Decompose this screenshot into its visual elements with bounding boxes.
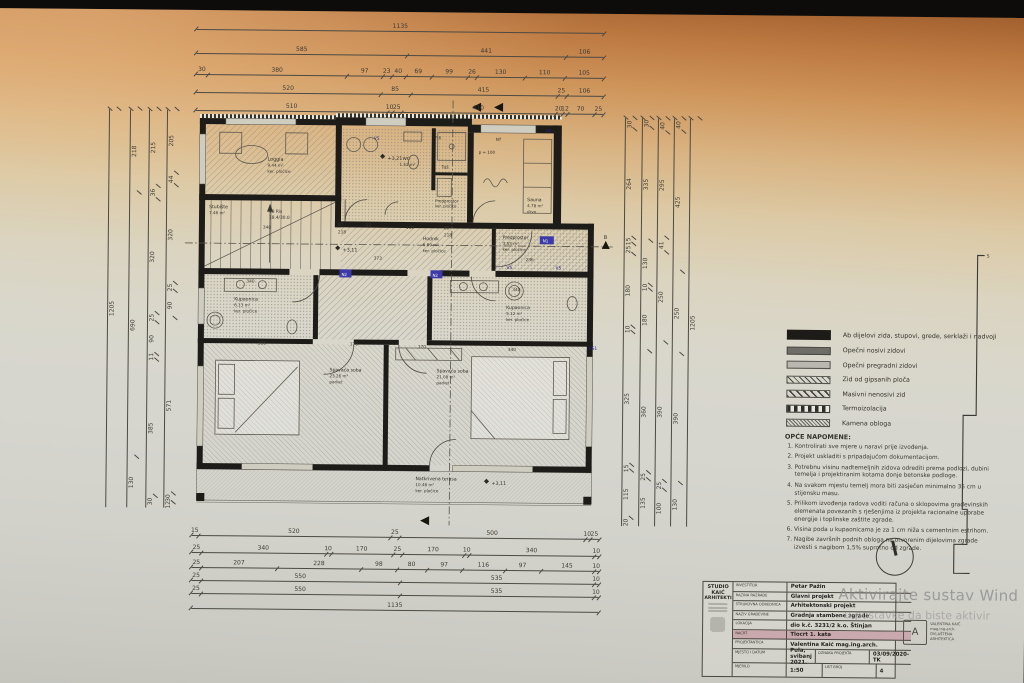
- elevation-311a: +3,11: [343, 247, 358, 253]
- titleblock-row-label: NACRT: [733, 630, 787, 639]
- dimension-value: 170: [331, 544, 393, 554]
- inner-dim: 80: [444, 225, 450, 231]
- legend-swatch: [786, 404, 830, 412]
- legend-label: Termoizolacija: [842, 405, 887, 412]
- titleblock-row-label: LOKACIJA: [733, 620, 787, 629]
- dim-chain-right-4: 40425250390130: [670, 119, 684, 527]
- dimension-value: 1135: [197, 20, 604, 33]
- sheet-number-value: 4: [877, 665, 912, 678]
- dimension-value: 25: [392, 103, 401, 112]
- dimension-value: 97: [505, 561, 541, 570]
- legend-swatch: [787, 361, 831, 369]
- dimension-value: 228: [277, 559, 361, 569]
- dimension-value: 207: [201, 558, 277, 568]
- dimension-value: 97: [426, 560, 462, 569]
- dim-chain-left-3: 2153632025901138530: [145, 110, 159, 508]
- monitor-photo: B +3,21 +3,11 +3,11 Loggia 9.44 m² ker. …: [0, 0, 1024, 683]
- dim-chain-bottom-3: 252072289880971169714510: [192, 558, 599, 572]
- dimension-value: 320: [166, 186, 176, 284]
- dimension-value: 510: [196, 101, 387, 112]
- north-needle: [891, 541, 897, 556]
- mark-n1: N1: [543, 238, 549, 243]
- sheet-number-label: LIST BROJ: [823, 664, 877, 678]
- dimension-value: 325: [623, 333, 633, 466]
- stamp-text: VALENTINA KAIĆ mag.ing.arch. OVLAŠTENA A…: [930, 620, 961, 645]
- dimension-value: 70: [567, 105, 593, 114]
- dimension-value: 535: [400, 586, 594, 597]
- studio-name-line2: ARHITEKTI: [704, 596, 731, 601]
- room-spavaca-r-floor: parket: [436, 380, 450, 385]
- dimension-value: 250: [657, 253, 667, 342]
- dimension-value: 30: [146, 497, 155, 508]
- dim-chain-top-3: 30380972340699926130110105: [196, 65, 603, 79]
- room-loggia-area: 9.44 m²: [267, 163, 283, 168]
- room-terasa-area: 10.48 m²: [415, 482, 434, 487]
- dim-chain-bottom-5: 2555053510: [191, 584, 598, 598]
- legend-swatch: [786, 375, 830, 383]
- room-kupaonica-l-area: 6.13 m²: [234, 302, 250, 307]
- stamp-line: ARHITEKTICA: [930, 637, 960, 642]
- dimension-value: 130: [641, 241, 650, 285]
- dim-chain-left-1: 1205: [105, 109, 119, 507]
- dimension-value: 135: [639, 481, 648, 527]
- dimension-value: 690: [128, 193, 140, 458]
- mark-n2a: N2: [341, 272, 347, 277]
- dimension-value: 550: [200, 584, 399, 595]
- room-sauna-floor: drvo: [527, 209, 537, 214]
- inner-dim: 340: [263, 225, 272, 231]
- mark-v5: V5: [374, 136, 380, 142]
- studio-logo: [710, 617, 725, 632]
- place-date-cell: MJESTO I DATUM Pula, svibanj 2021.: [733, 649, 816, 663]
- dim-chain-left-2: 218690130: [126, 109, 140, 507]
- dimension-value: 12: [164, 503, 173, 508]
- dim-chain-top-4: 5208541525106: [196, 83, 603, 97]
- mark-p100: p = 100: [479, 150, 496, 155]
- room-predprostor2-area: 3.53 m²: [503, 241, 519, 246]
- room-predprostor1-floor: ker. pločice: [435, 203, 457, 208]
- inner-dim: 218: [338, 229, 347, 235]
- dimension-value: 500: [399, 528, 584, 539]
- mark-nt: NT: [496, 137, 502, 142]
- dimension-value: 295: [658, 133, 668, 239]
- dimension-value: 390: [655, 342, 665, 482]
- inner-dim: 340: [508, 347, 517, 353]
- elevation-311b: +3,11: [491, 481, 506, 487]
- room-stubiste-area: 7.48 m²: [209, 210, 225, 215]
- dimension-value: 340: [201, 543, 326, 553]
- dim-chain-top-2: 585441106: [197, 44, 604, 58]
- dimension-value: 130: [671, 484, 680, 527]
- room-kupaonica-r-floor: ker. pločice: [506, 317, 530, 322]
- dimension-value: 130: [477, 68, 525, 77]
- inner-dim: 340: [512, 287, 521, 293]
- dimension-value: 180: [624, 254, 634, 327]
- studio-name-line1: STUDIO KAIĆ: [704, 584, 731, 596]
- project-code-label: OZNAKA PROJEKTA: [816, 650, 870, 664]
- dimension-value: 1135: [191, 599, 598, 612]
- notes-title: OPĆE NAPOMENE:: [785, 433, 851, 442]
- room-hodnik-floor: ker. pločice: [423, 248, 447, 253]
- dimension-value: 90: [166, 291, 175, 319]
- room-spavaca-l-area: 23.26 m²: [329, 373, 348, 378]
- studio-cell: STUDIO KAIĆ ARHITEKTI: [703, 582, 734, 676]
- dimension-value: 116: [462, 561, 505, 570]
- dimension-value: 23: [382, 67, 391, 76]
- mark-vs1: VS1: [589, 346, 598, 352]
- dimension-value: 80: [397, 560, 427, 569]
- dimension-value: 25: [192, 558, 201, 567]
- dimension-value: 215: [149, 110, 159, 187]
- dimension-value: 97: [347, 66, 383, 75]
- dimension-value: 100: [655, 491, 664, 527]
- titleblock-row-label: NAZIV GRAĐEVINE: [733, 611, 787, 620]
- project-code-cell: OZNAKA PROJEKTA 03/09/2020-TK: [816, 650, 912, 664]
- dim-chain-top-1: 1135: [197, 20, 604, 34]
- dimension-value: 170: [402, 545, 464, 555]
- mark-v5b: V5: [506, 265, 512, 271]
- dimension-value: 571: [164, 319, 175, 494]
- dimension-value: 145: [540, 561, 593, 571]
- inner-dim: 390: [258, 341, 267, 347]
- stamp-logo-a: A: [903, 620, 927, 645]
- dim-chain-bottom-2: 2534010170251701034010: [192, 543, 599, 557]
- stair-risers-1: 18 Ris: [269, 209, 283, 215]
- room-kupaonica-r-area: 5.12 m²: [506, 311, 522, 316]
- dimension-value: 26: [467, 68, 477, 77]
- legend-swatch: [787, 346, 831, 354]
- inner-dim: 83: [366, 223, 372, 229]
- dimension-value: 25: [590, 530, 599, 539]
- mark-v8: V8: [546, 128, 552, 134]
- dimension-value: 10: [593, 588, 598, 597]
- dimension-value: 25: [393, 545, 402, 554]
- dimension-value: 218: [130, 109, 140, 193]
- dimension-value: 25: [594, 105, 603, 114]
- dimension-value: 10: [594, 562, 599, 571]
- dimension-value: 10: [594, 547, 599, 556]
- windows-activation-watermark-line1: Aktivirajte sustav Wind: [838, 585, 1018, 605]
- north-arrow: [876, 538, 914, 576]
- legend-swatch: [786, 419, 830, 427]
- inner-dim: 340: [246, 278, 255, 284]
- stair-risers-2: 18.4/30.0: [269, 215, 290, 221]
- dimension-value: 25: [191, 584, 200, 593]
- titleblock-row-label: PROJEKTANTICA: [733, 640, 787, 649]
- dim-chain-right-3: 402954125039025100: [654, 118, 668, 526]
- dimension-value: 85: [380, 85, 410, 94]
- dim-chain-bottom-6: 1135: [191, 599, 598, 613]
- section-profile-line: S: [933, 242, 996, 583]
- sheet-number-cell: LIST BROJ 4: [823, 664, 912, 678]
- dimension-value: 25: [390, 528, 399, 537]
- windows-activation-watermark-line2: u postavke da biste aktivir: [844, 608, 990, 622]
- scale-label: MJERILO: [733, 663, 787, 677]
- dimension-value: 520: [196, 83, 380, 94]
- inner-dim: 373: [374, 256, 383, 262]
- titleblock-row-label: STRUKOVNA ODREDNICA: [734, 601, 788, 610]
- inner-dim: 97: [338, 222, 344, 228]
- dimension-value: 390: [671, 355, 681, 484]
- dimension-value: 385: [146, 359, 156, 497]
- room-spavaca-r-area: 21.08 m²: [436, 374, 455, 379]
- dimension-value: 25: [192, 543, 201, 552]
- inner-dim: 170: [418, 344, 427, 350]
- dimension-value: 550: [201, 571, 400, 582]
- mark-n2b: N2: [432, 273, 438, 278]
- room-predprostor2-floor: ker. pločice: [503, 247, 527, 252]
- dimension-value: 25: [192, 571, 201, 580]
- titleblock-row-label: RAZINA RAZRADE: [734, 592, 788, 601]
- architect-stamp: A VALENTINA KAIĆ mag.ing.arch. OVLAŠTENA…: [903, 620, 961, 646]
- dimension-value: 415: [410, 85, 557, 95]
- inner-dim: 110: [406, 225, 415, 231]
- dimension-value: 130: [127, 457, 136, 507]
- room-loggia-floor: ker. pločice: [267, 169, 291, 174]
- scale-value: 1:50: [787, 664, 822, 677]
- dim-chain-right-5: 1205: [686, 119, 700, 527]
- dimension-value: 535: [400, 573, 594, 584]
- place-date-value: Pula, svibanj 2021.: [787, 650, 815, 663]
- dimension-value: 115: [622, 471, 631, 518]
- floor-plan-drawing: B +3,21 +3,11 +3,11 Loggia 9.44 m² ker. …: [182, 98, 616, 532]
- room-hodnik-area: 6.89 m²: [423, 242, 439, 247]
- dimension-value: 30: [196, 65, 207, 74]
- dim-chain-right-1: 302641525180103251511520: [621, 118, 635, 526]
- dimension-value: 425: [673, 132, 683, 272]
- dimension-value: 180: [641, 290, 651, 351]
- dim-chain-left-4: 2054432025905713012: [163, 110, 177, 508]
- dimension-value: 1205: [687, 119, 700, 527]
- project-code-value: 03/09/2020-TK: [870, 650, 912, 663]
- room-fills: [196, 124, 595, 506]
- room-kupaonica-l-floor: ker. pločice: [234, 308, 258, 313]
- studio-address-line: [708, 606, 727, 608]
- inner-dim: 170: [350, 341, 359, 347]
- dimension-value: 520: [198, 526, 391, 537]
- titleblock-row-label: INVESTITOR: [734, 582, 788, 591]
- dimension-value: 264: [625, 130, 635, 238]
- legend-label: Kamena obloga: [842, 420, 891, 427]
- legend-swatch: [786, 390, 830, 398]
- dimension-value: 585: [197, 44, 407, 55]
- screen: B +3,21 +3,11 +3,11 Loggia 9.44 m² ker. …: [0, 8, 1024, 683]
- dimension-value: 441: [407, 46, 566, 57]
- titleblock-row-value: Tlocrt 1. kata: [787, 631, 911, 641]
- room-spavaca-l-floor: parket: [329, 379, 343, 384]
- room-sauna-area: 4.78 m²: [527, 203, 543, 208]
- mark-v5c: V5: [555, 265, 561, 271]
- scale-cell: MJERILO 1:50: [733, 663, 823, 677]
- dimension-value: 1205: [106, 109, 119, 507]
- dimension-value: 90: [148, 322, 157, 354]
- dimension-value: 410: [401, 103, 555, 113]
- dimension-value: 106: [566, 87, 604, 96]
- dimension-value: 110: [524, 68, 564, 77]
- dimension-value: 99: [431, 67, 467, 76]
- legend-swatch: [787, 330, 831, 340]
- dimension-value: 69: [406, 67, 431, 76]
- studio-address-line: [708, 603, 727, 605]
- legend-label: Zid od gipsanih ploča: [842, 376, 910, 384]
- dimension-value: 250: [673, 272, 683, 355]
- dimension-value: 205: [167, 110, 177, 173]
- titleblock-bottom-row-2: MJERILO 1:50 LIST BROJ 4: [733, 663, 911, 678]
- dimension-value: 340: [469, 546, 594, 556]
- dimension-value: 25: [557, 86, 566, 95]
- dimension-value: 10: [593, 575, 598, 584]
- legend-label: Opečni pregradni zidovi: [843, 362, 918, 370]
- inner-dim: 236: [526, 257, 535, 263]
- inner-dim: 218: [444, 232, 453, 238]
- profile-label-s: S: [987, 254, 990, 260]
- room-wc-area: 1.52 m²: [399, 162, 415, 167]
- section-label-b: B: [604, 235, 608, 241]
- mark-fix: FIX: [435, 135, 442, 140]
- legend-label: Masivni nenosivi zid: [842, 391, 905, 399]
- dimension-value: 320: [148, 199, 158, 313]
- dimension-value: 105: [565, 69, 604, 78]
- dimension-value: 335: [642, 128, 652, 241]
- studio-address-line: [708, 610, 727, 612]
- dim-chain-right-2: 303351301018036025135: [638, 118, 652, 526]
- legend-label: Opečni nosivi zidovi: [843, 347, 906, 355]
- dimension-value: 106: [565, 48, 603, 57]
- dimension-value: 40: [391, 67, 406, 76]
- dimension-value: 380: [207, 65, 347, 75]
- dimension-value: 360: [640, 351, 650, 472]
- titleblock-row-value: dio k.č. 3231/2 k.o. Štinjan: [787, 621, 911, 631]
- room-terasa-floor: ker. pločice: [415, 488, 439, 493]
- dimension-value: 20: [622, 518, 631, 526]
- dimension-value: 98: [361, 560, 397, 569]
- place-date-label: MJESTO I DATUM: [733, 649, 787, 663]
